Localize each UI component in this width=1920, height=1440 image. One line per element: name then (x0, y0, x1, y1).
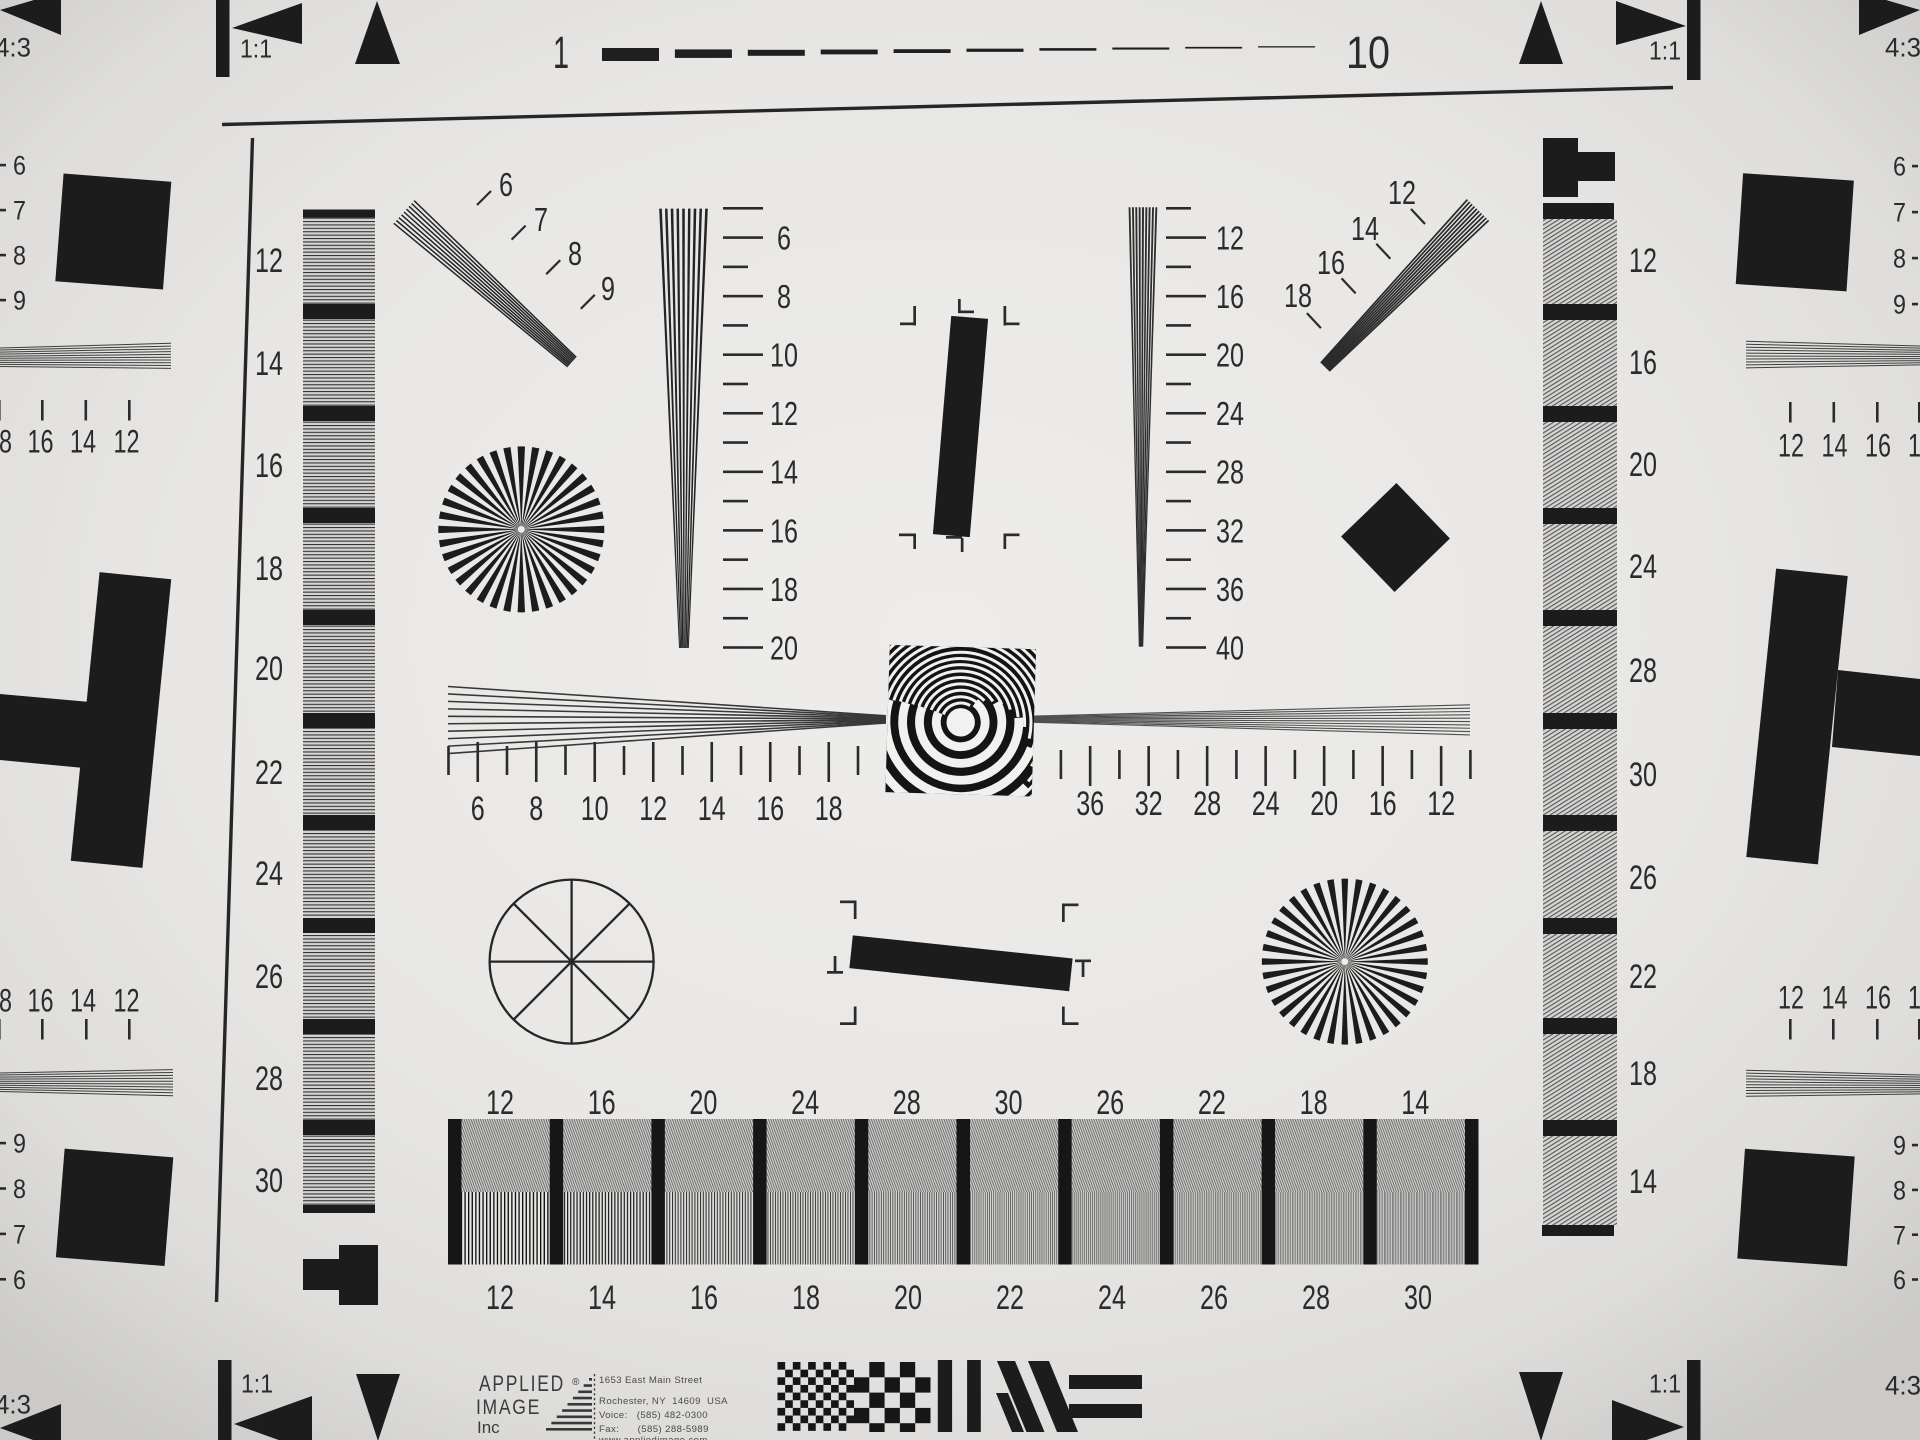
svg-text:30: 30 (1404, 1279, 1432, 1317)
svg-text:18: 18 (255, 550, 283, 588)
svg-text:36: 36 (1216, 571, 1244, 608)
svg-text:30: 30 (1629, 756, 1657, 794)
svg-text:9: 9 (13, 1129, 26, 1159)
svg-text:12: 12 (486, 1084, 514, 1122)
svg-text:30: 30 (995, 1084, 1023, 1122)
svg-text:8: 8 (13, 1174, 26, 1204)
svg-text:32: 32 (1216, 512, 1244, 549)
svg-text:14: 14 (1629, 1163, 1657, 1201)
svg-text:22: 22 (996, 1279, 1024, 1317)
svg-text:4:3: 4:3 (0, 33, 31, 63)
svg-text:40: 40 (1216, 629, 1244, 666)
svg-text:12: 12 (1629, 242, 1657, 280)
svg-text:1:1: 1:1 (1649, 35, 1681, 65)
svg-text:16: 16 (1629, 344, 1657, 382)
svg-text:20: 20 (1216, 337, 1244, 374)
svg-text:9: 9 (1893, 1131, 1906, 1161)
svg-text:18: 18 (0, 983, 12, 1019)
svg-text:20: 20 (770, 629, 798, 666)
svg-text:12: 12 (255, 242, 283, 280)
svg-text:www.appliedimage.com: www.appliedimage.com (598, 1435, 708, 1440)
svg-text:26: 26 (1096, 1084, 1124, 1122)
svg-text:20: 20 (1629, 446, 1657, 484)
svg-text:8: 8 (1893, 1176, 1906, 1206)
svg-text:1:1: 1:1 (240, 33, 272, 63)
svg-text:26: 26 (1629, 859, 1657, 897)
svg-text:10: 10 (770, 337, 798, 374)
svg-text:20: 20 (255, 650, 283, 688)
svg-text:14: 14 (1822, 428, 1848, 464)
svg-text:20: 20 (894, 1279, 922, 1317)
svg-text:6: 6 (13, 1265, 26, 1295)
svg-text:12: 12 (114, 983, 140, 1019)
svg-text:22: 22 (1629, 958, 1657, 996)
svg-text:16: 16 (1317, 244, 1345, 281)
svg-text:8: 8 (13, 241, 26, 271)
svg-text:7: 7 (13, 1220, 26, 1250)
svg-text:12: 12 (1216, 220, 1244, 257)
svg-text:12: 12 (639, 790, 667, 828)
svg-text:16: 16 (28, 424, 54, 460)
svg-text:1:1: 1:1 (1649, 1368, 1681, 1398)
svg-text:12: 12 (1778, 428, 1804, 464)
svg-text:16: 16 (28, 983, 54, 1019)
svg-text:18: 18 (1908, 980, 1920, 1016)
svg-text:14: 14 (1351, 210, 1379, 247)
svg-text:Rochester, NY 14609 USA: Rochester, NY 14609 USA (599, 1396, 728, 1407)
svg-text:6: 6 (1893, 1265, 1906, 1295)
svg-text:28: 28 (1193, 785, 1221, 823)
svg-text:7: 7 (13, 196, 26, 226)
svg-text:28: 28 (893, 1084, 921, 1122)
svg-text:9: 9 (1893, 290, 1906, 320)
svg-text:14: 14 (1401, 1084, 1429, 1122)
svg-text:4:3: 4:3 (0, 1390, 31, 1420)
svg-text:APPLIED: APPLIED (479, 1371, 565, 1396)
svg-text:12: 12 (486, 1279, 514, 1317)
svg-text:10: 10 (581, 790, 609, 828)
svg-text:18: 18 (792, 1279, 820, 1317)
svg-text:18: 18 (1300, 1084, 1328, 1122)
svg-text:9: 9 (13, 286, 26, 316)
svg-text:4:3: 4:3 (1885, 33, 1920, 63)
svg-text:6: 6 (471, 790, 485, 828)
svg-text:24: 24 (1252, 785, 1280, 823)
svg-text:12: 12 (770, 395, 798, 432)
svg-text:9: 9 (601, 270, 615, 307)
svg-text:1653 East Main Street: 1653 East Main Street (599, 1375, 702, 1386)
svg-text:16: 16 (690, 1279, 718, 1317)
svg-text:14: 14 (1822, 980, 1848, 1016)
svg-text:8: 8 (529, 790, 543, 828)
svg-text:30: 30 (255, 1162, 283, 1200)
svg-text:36: 36 (1076, 785, 1104, 823)
svg-text:32: 32 (1135, 785, 1163, 823)
svg-text:6: 6 (1893, 152, 1906, 182)
svg-text:18: 18 (815, 790, 843, 828)
svg-text:®: ® (572, 1377, 580, 1388)
svg-text:16: 16 (1216, 278, 1244, 315)
svg-text:6: 6 (777, 220, 791, 257)
svg-text:28: 28 (1629, 652, 1657, 690)
svg-text:14: 14 (698, 790, 726, 828)
svg-text:12: 12 (114, 424, 140, 460)
svg-text:1: 1 (553, 27, 569, 78)
svg-text:18: 18 (770, 571, 798, 608)
svg-text:14: 14 (588, 1279, 616, 1317)
svg-text:18: 18 (1629, 1055, 1657, 1093)
svg-text:18: 18 (1908, 428, 1920, 464)
svg-text:8: 8 (568, 235, 582, 272)
svg-text:28: 28 (1216, 454, 1244, 491)
svg-text:IMAGE: IMAGE (476, 1396, 541, 1419)
svg-text:22: 22 (255, 754, 283, 792)
svg-text:24: 24 (1216, 395, 1244, 432)
svg-text:12: 12 (1388, 174, 1416, 211)
svg-text:16: 16 (255, 447, 283, 485)
svg-text:16: 16 (1865, 428, 1891, 464)
svg-text:14: 14 (70, 424, 96, 460)
svg-text:14: 14 (255, 345, 283, 383)
svg-text:24: 24 (1629, 548, 1657, 586)
svg-text:7: 7 (534, 201, 548, 238)
svg-text:16: 16 (1369, 785, 1397, 823)
svg-text:18: 18 (0, 424, 12, 460)
svg-text:8: 8 (1893, 244, 1906, 274)
svg-text:12: 12 (1778, 980, 1804, 1016)
svg-text:12: 12 (1427, 785, 1455, 823)
svg-text:6: 6 (499, 166, 513, 203)
svg-text:4:3: 4:3 (1885, 1371, 1920, 1401)
svg-text:24: 24 (255, 855, 283, 893)
svg-text:Inc: Inc (477, 1418, 500, 1437)
svg-text:20: 20 (1310, 785, 1338, 823)
svg-text:14: 14 (70, 983, 96, 1019)
svg-text:26: 26 (255, 958, 283, 996)
svg-text:1:1: 1:1 (241, 1368, 273, 1398)
svg-text:6: 6 (13, 151, 26, 181)
svg-text:22: 22 (1198, 1084, 1226, 1122)
svg-text:7: 7 (1893, 1220, 1906, 1250)
svg-text:Fax: (585) 288-5989: Fax: (585) 288-5989 (599, 1424, 709, 1435)
svg-text:20: 20 (689, 1084, 717, 1122)
svg-text:16: 16 (1865, 980, 1891, 1016)
svg-text:28: 28 (255, 1060, 283, 1098)
svg-text:28: 28 (1302, 1279, 1330, 1317)
svg-text:24: 24 (1098, 1279, 1126, 1317)
svg-text:16: 16 (770, 512, 798, 549)
svg-text:8: 8 (777, 278, 791, 315)
svg-text:16: 16 (756, 790, 784, 828)
svg-text:7: 7 (1893, 198, 1906, 228)
svg-text:16: 16 (588, 1084, 616, 1122)
svg-text:Voice: (585) 482-0300: Voice: (585) 482-0300 (599, 1410, 708, 1421)
svg-text:26: 26 (1200, 1279, 1228, 1317)
svg-text:10: 10 (1346, 27, 1390, 78)
svg-text:14: 14 (770, 454, 798, 491)
svg-text:24: 24 (791, 1084, 819, 1122)
svg-text:18: 18 (1284, 277, 1312, 314)
